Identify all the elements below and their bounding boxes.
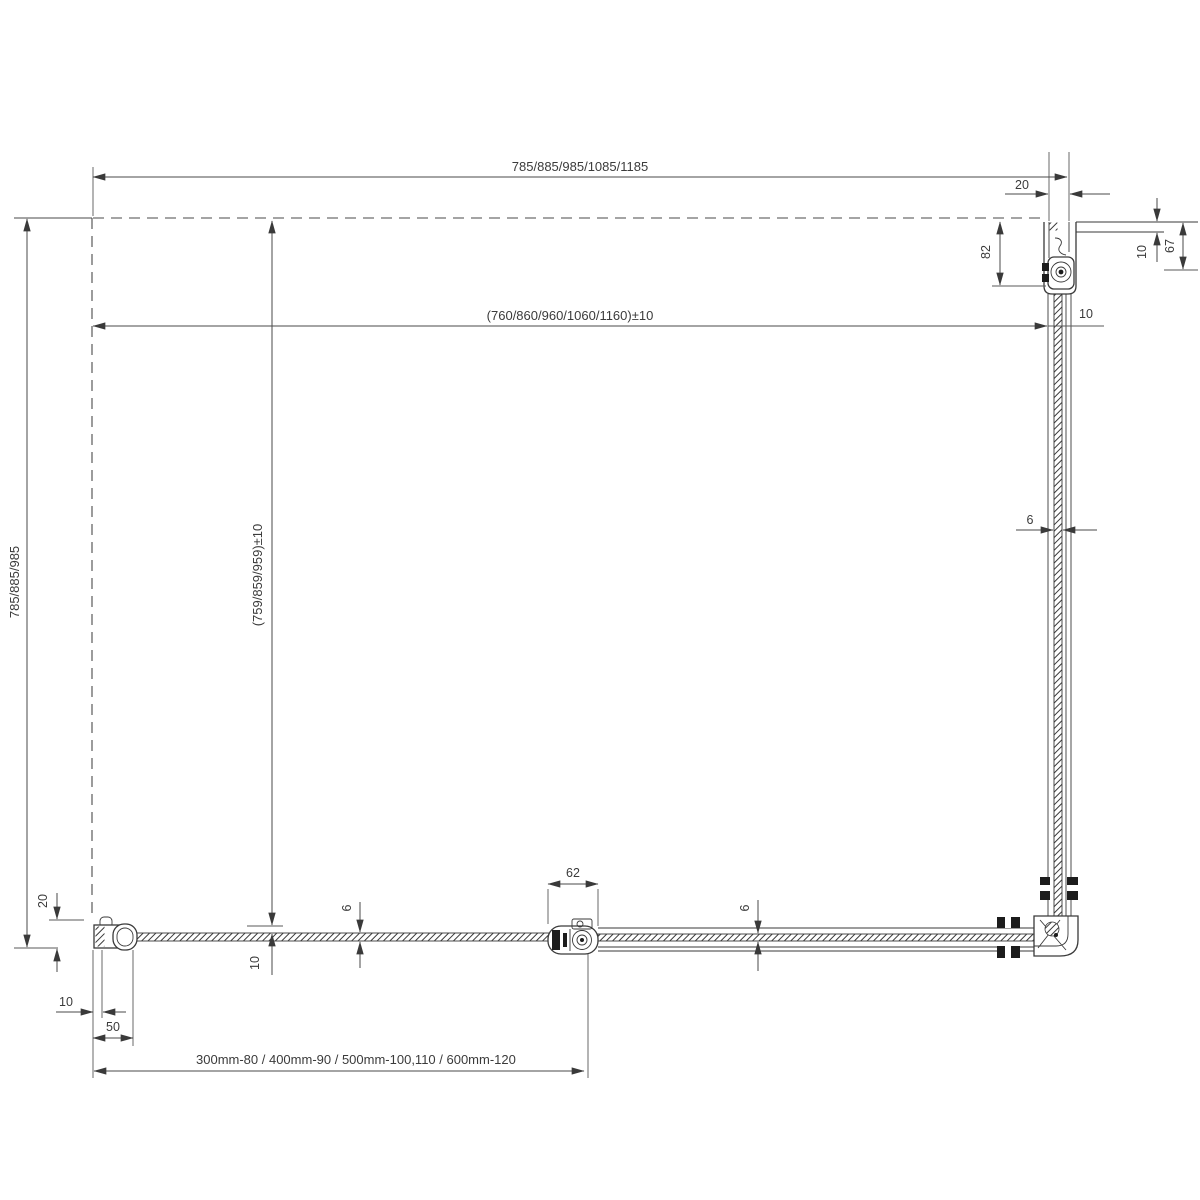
label-panel-gap-top-right: 10 bbox=[1135, 245, 1149, 259]
hinge-clamp-block bbox=[1042, 274, 1049, 282]
door-glass bbox=[134, 933, 549, 941]
dim-glass-depth: (759/859/959)±10 10 bbox=[247, 221, 283, 975]
label-tray-note: 300mm-80 / 400mm-90 / 500mm-100,110 / 60… bbox=[196, 1052, 516, 1067]
label-hinge-offset-top: 82 bbox=[979, 245, 993, 259]
shower-enclosure-plan-drawing: 785/885/985/1085/1185 20 82 10 67 (760/8… bbox=[0, 0, 1200, 1200]
label-wall-profile-width: 50 bbox=[106, 1020, 120, 1034]
drawing-page: 785/885/985/1085/1185 20 82 10 67 (760/8… bbox=[0, 0, 1200, 1200]
dim-right-side-offsets: 10 67 bbox=[1135, 198, 1198, 270]
door-hinge bbox=[548, 919, 598, 954]
label-wall-profile-depth-right: 67 bbox=[1163, 239, 1177, 253]
label-glass-depth: (759/859/959)±10 bbox=[250, 524, 265, 627]
label-glass-width: (760/860/960/1060/1160)±10 bbox=[487, 308, 654, 323]
label-right-panel-glass-thickness: 6 bbox=[1027, 513, 1034, 527]
label-top-profile-inner: 20 bbox=[1015, 178, 1029, 192]
label-door-gap-bottom: 10 bbox=[248, 956, 262, 970]
door-panel bbox=[134, 933, 549, 941]
right-panel-glass bbox=[1054, 294, 1062, 935]
hinge-clamp-block bbox=[563, 933, 567, 947]
label-door-glass-thickness: 6 bbox=[340, 904, 354, 911]
hinge-pivot-center bbox=[1059, 270, 1064, 275]
bottom-fixed-panel bbox=[598, 928, 1040, 951]
right-fixed-panel bbox=[1048, 294, 1071, 935]
clamp-slot bbox=[1040, 885, 1050, 891]
label-hinge-width: 62 bbox=[566, 866, 580, 880]
dim-bottom-left-group: 10 50 300mm-80 / 400mm-90 / 500mm-100,11… bbox=[56, 950, 588, 1078]
clamp-slot bbox=[1067, 885, 1078, 891]
corner-screw-center bbox=[1054, 933, 1058, 937]
dim-hinge-width: 62 bbox=[548, 866, 598, 926]
wall-profile-left bbox=[94, 917, 137, 950]
profile-hatch bbox=[96, 927, 105, 947]
dim-wall-profile-adjust: 20 bbox=[36, 893, 84, 972]
label-bottom-panel-glass-thickness: 6 bbox=[738, 904, 752, 911]
wall-profile-top-right bbox=[1042, 222, 1198, 294]
corner-connector bbox=[1034, 916, 1078, 956]
dim-overall-depth: 785/885/985 bbox=[7, 219, 58, 948]
dim-glass-width: (760/860/960/1060/1160)±10 10 bbox=[93, 307, 1104, 326]
profile-hatch bbox=[1050, 223, 1058, 231]
hinge-clamp-block bbox=[552, 930, 560, 950]
label-wall-gap-bottom-left: 10 bbox=[59, 995, 73, 1009]
label-overall-depth: 785/885/985 bbox=[7, 546, 22, 618]
label-wall-profile-adjust: 20 bbox=[36, 894, 50, 908]
hinge-clamp-block bbox=[1042, 263, 1049, 271]
label-glass-offset-right: 10 bbox=[1079, 307, 1093, 321]
label-overall-width: 785/885/985/1085/1185 bbox=[512, 159, 648, 174]
hinge-pivot-center bbox=[580, 938, 584, 942]
clamp-slot bbox=[1005, 946, 1011, 958]
dim-hinge-offset-top: 82 bbox=[979, 222, 1046, 286]
bottom-panel-glass bbox=[598, 934, 1040, 941]
dim-overall-width: 785/885/985/1085/1185 bbox=[93, 152, 1069, 221]
clamp-slot bbox=[1005, 917, 1011, 928]
dim-top-profile-inner: 20 bbox=[1005, 178, 1110, 194]
